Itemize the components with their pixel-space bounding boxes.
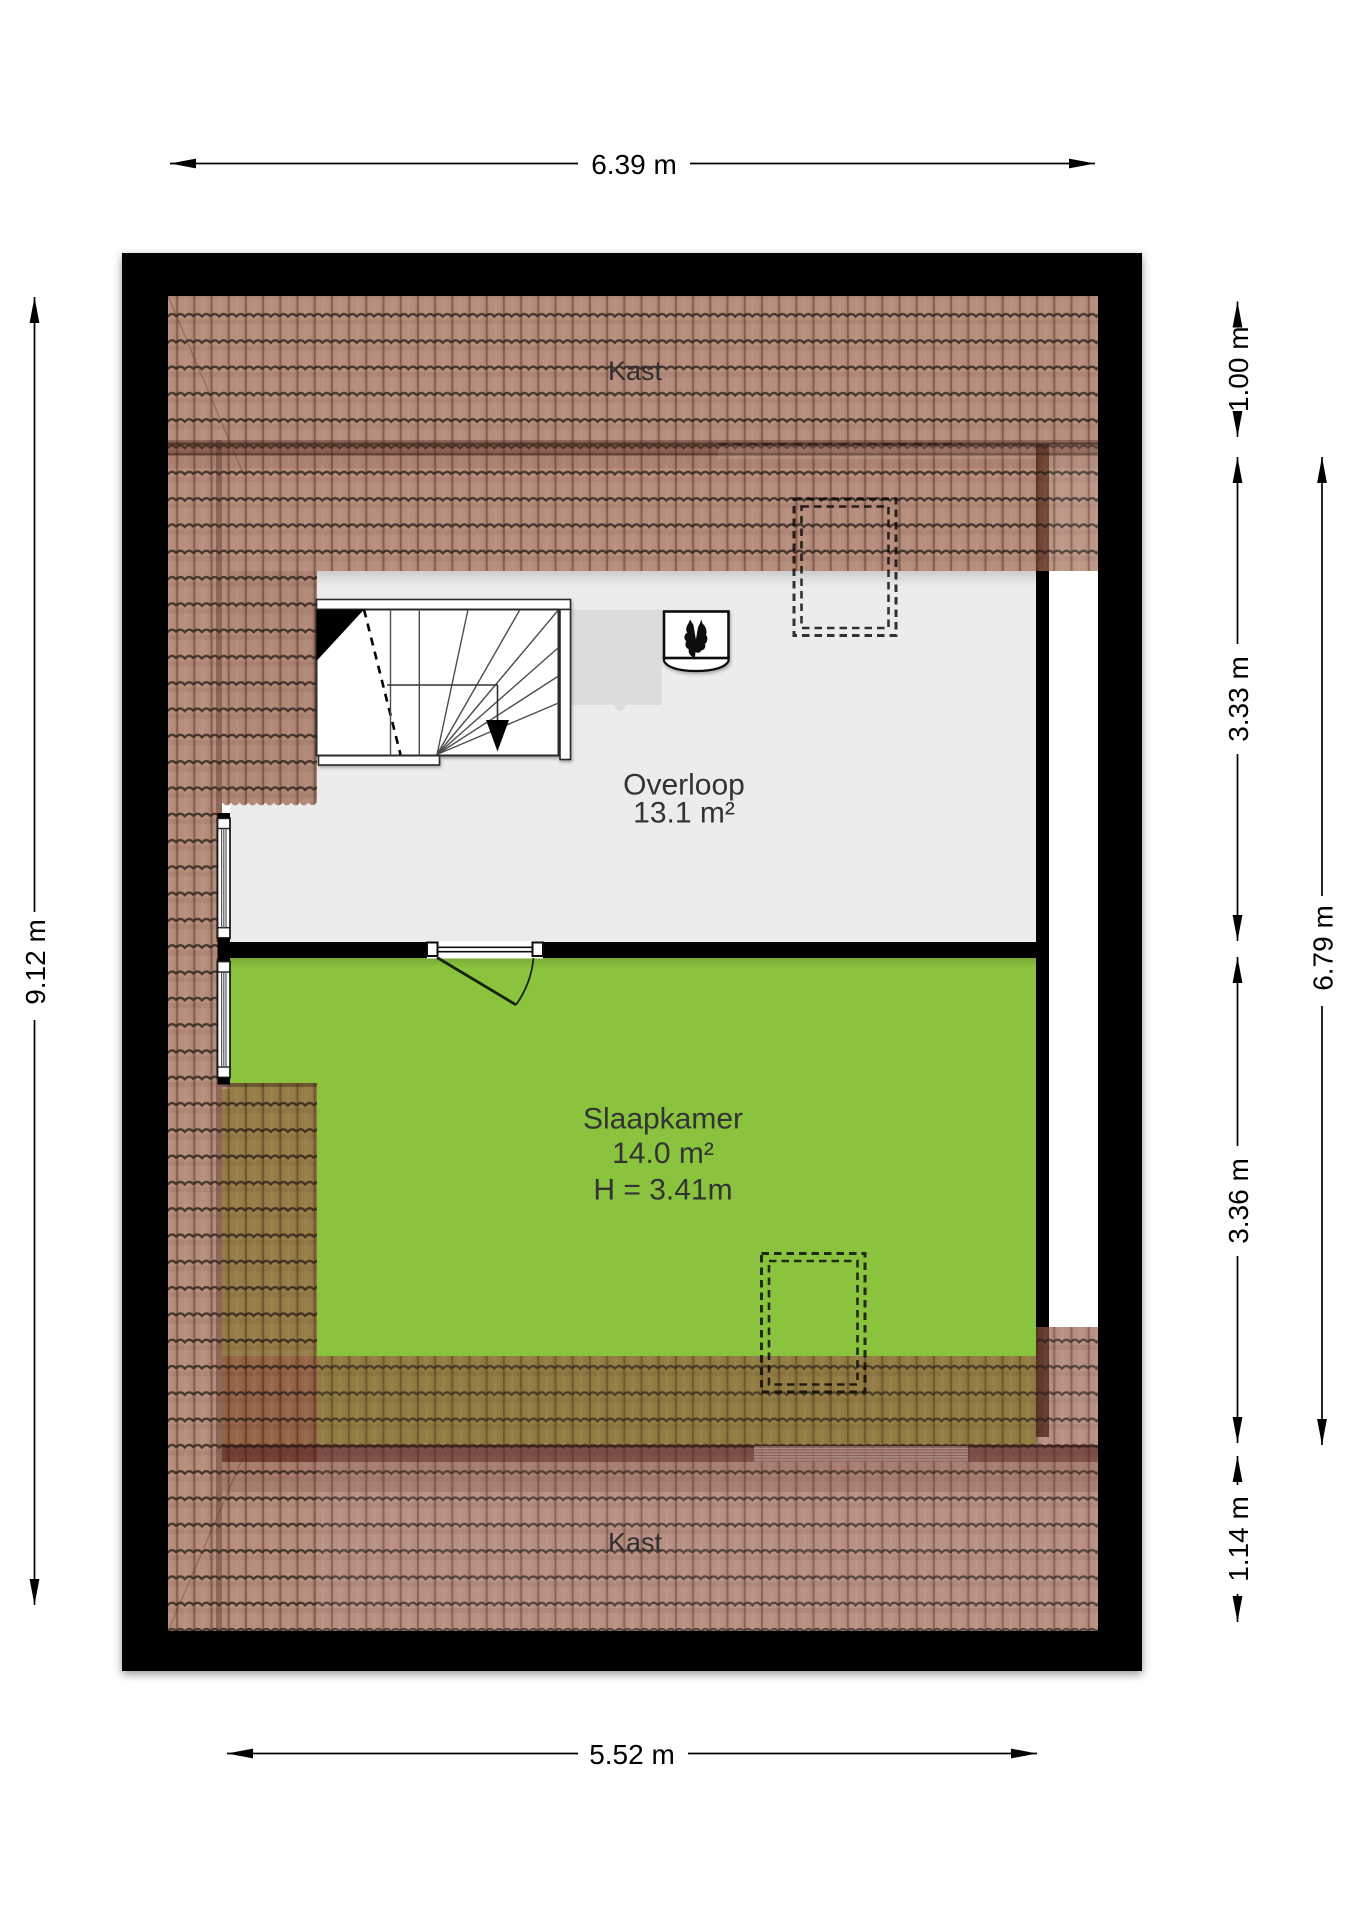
svg-text:H = 3.41m: H = 3.41m: [593, 1174, 732, 1207]
svg-text:Kast: Kast: [608, 356, 663, 386]
svg-text:14.0 m²: 14.0 m²: [612, 1137, 714, 1170]
svg-text:Slaapkamer: Slaapkamer: [583, 1103, 743, 1136]
svg-text:6.79 m: 6.79 m: [1308, 905, 1339, 991]
svg-text:3.33 m: 3.33 m: [1223, 656, 1254, 742]
svg-text:13.1 m²: 13.1 m²: [633, 797, 735, 830]
svg-text:6.39 m: 6.39 m: [591, 149, 677, 180]
svg-text:5.52 m: 5.52 m: [589, 1739, 675, 1770]
svg-text:1.00 m: 1.00 m: [1223, 326, 1254, 412]
svg-text:1.14 m: 1.14 m: [1223, 1496, 1254, 1582]
svg-text:3.36 m: 3.36 m: [1223, 1158, 1254, 1244]
svg-text:9.12 m: 9.12 m: [20, 919, 51, 1005]
svg-text:Kast: Kast: [608, 1528, 663, 1558]
